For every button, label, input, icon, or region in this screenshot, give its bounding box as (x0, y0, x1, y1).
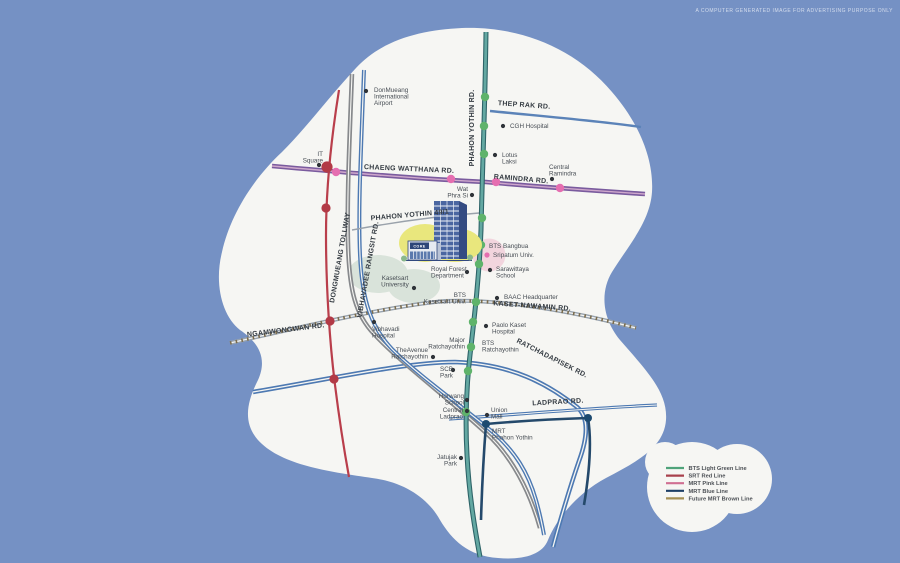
landmark-label-kasetsart-university: KasetsartUniversity (381, 275, 409, 289)
landmark-dot-union-mall (485, 413, 489, 417)
station-red (321, 203, 330, 212)
landmark-dot-horwang-school (465, 398, 469, 402)
station-red (325, 316, 334, 325)
landmark-dot-lotus-laksi (493, 153, 497, 157)
landmark-dot-theavenue-ratchayothin (431, 355, 435, 359)
landmark-dot-vibhavadi-hospital (372, 320, 376, 324)
legend-label: Future MRT Brown Line (689, 496, 753, 502)
station-pink (332, 168, 340, 176)
legend-label: MRT Pink Line (689, 481, 728, 487)
landmark-label-baac-headquarter: BAAC Headquarter (504, 294, 558, 301)
landmark-label-central-ladprao: CentralLadprao (440, 407, 464, 421)
station-green (464, 367, 472, 375)
station-green (467, 343, 475, 351)
station-red (329, 374, 338, 383)
landmark-dot-sarawittaya-school (488, 268, 492, 272)
landmark-label-royal-forest-department: Royal ForestDepartment (431, 266, 467, 280)
landmark-dot-wat-phra-si (470, 193, 474, 197)
landmark-dot-kasetsart-university (412, 286, 416, 290)
station-green (481, 93, 489, 101)
landmark-label-lotus-laksi: LotusLaksi (502, 152, 517, 166)
legend-label: SRT Red Line (689, 474, 726, 480)
tower-side (459, 201, 467, 259)
legend-label: MRT Blue Line (689, 489, 729, 495)
station-green (472, 298, 480, 306)
landmark-dot-central-ladprao (465, 409, 469, 413)
station-navy (482, 420, 490, 428)
landmark-dot-jatujak-park (459, 456, 463, 460)
station-green (480, 122, 488, 130)
landmark-label-cgh-hospital: CGH Hospital (510, 123, 549, 130)
map-screenshot: CORE DonMueangInternationalAirportITSqua… (0, 0, 900, 563)
landmark-dot-sripatum-univ (484, 252, 489, 257)
road-label-phahon-yothin: PHAHON YOTHIN RD. (469, 90, 476, 167)
station-pink (556, 184, 564, 192)
landmark-label-scb-park: SCBPark (440, 366, 454, 380)
station-green (478, 214, 486, 222)
station-green (480, 150, 488, 158)
station-pink (447, 175, 455, 183)
landmark-dot-donmueang-airport (364, 89, 368, 93)
station-navy (584, 414, 592, 422)
landmark-label-sripatum-univ: Sripatum Univ. (493, 252, 534, 259)
podium-glass-mullions (413, 252, 433, 260)
station-green (469, 318, 477, 326)
disclaimer-text: A COMPUTER GENERATED IMAGE FOR ADVERTISI… (695, 8, 893, 14)
landmark-dot-cgh-hospital (501, 124, 505, 128)
landmark-dot-paolo-kaset-hospital (484, 324, 488, 328)
tree-icon (467, 255, 473, 261)
station-green (475, 260, 483, 268)
core-sign-text: CORE (413, 245, 425, 249)
station-red (321, 161, 332, 172)
legend-label: BTS Light Green Line (689, 466, 747, 472)
map-canvas: CORE DonMueangInternationalAirportITSqua… (0, 0, 900, 563)
landmark-label-bts-bangbua: BTS Bangbua (489, 243, 529, 250)
tree-icon (401, 256, 407, 262)
landmark-label-theavenue-ratchayothin: TheAvenueRatchayothin (391, 347, 428, 361)
